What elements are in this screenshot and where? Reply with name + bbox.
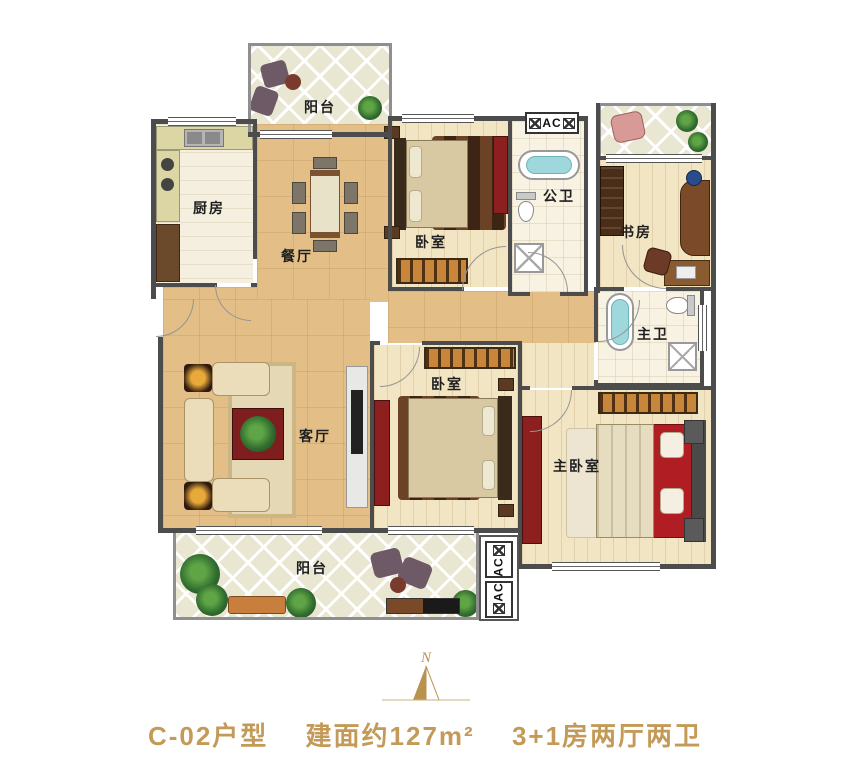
balcony-table (285, 74, 301, 90)
balcony-bench (228, 596, 286, 614)
window (698, 305, 707, 351)
bedroom-mid-wardrobe (424, 347, 516, 369)
caption-unit-name: C-02户型 (148, 721, 268, 751)
kitchen-sink-basin (205, 132, 220, 144)
plant (286, 588, 316, 618)
public-bath-tub-water (526, 156, 572, 174)
dining-table (310, 170, 340, 238)
tv-screen (351, 390, 363, 454)
dining-chair (344, 212, 358, 234)
balcony-table (390, 577, 406, 593)
bedroom-top-wardrobe (396, 258, 468, 284)
nightstand (384, 226, 400, 239)
corridor-floor (388, 291, 596, 343)
wall (422, 341, 522, 345)
wall (151, 119, 156, 299)
window (606, 154, 702, 163)
caption-layout: 3+1房两厅两卫 (512, 721, 702, 751)
study-keyboard (676, 266, 696, 279)
window (388, 526, 474, 535)
ac-unit-right-lower: AC (485, 581, 513, 618)
dining-chair (344, 182, 358, 204)
dining-chair (292, 182, 306, 204)
coffee-table-plant (240, 416, 276, 452)
master-bath-shower (668, 342, 697, 371)
room-label-bedroom-top: 卧室 (415, 232, 447, 252)
room-label-master-bath: 主卫 (637, 324, 669, 344)
ac-hatch-icon (493, 545, 505, 556)
plant (358, 96, 382, 120)
wall (711, 103, 716, 569)
wall (666, 287, 716, 291)
window (196, 526, 322, 535)
ac-label: AC (492, 582, 506, 601)
master-wardrobe (598, 392, 698, 414)
bedroom-top-headboard (394, 138, 406, 230)
wall (248, 43, 392, 46)
compass-north-label: N (420, 650, 432, 666)
plant (196, 584, 228, 616)
wall (572, 386, 714, 390)
wall (596, 103, 600, 293)
wall (151, 283, 217, 287)
room-label-master-bedroom: 主卧室 (553, 456, 601, 476)
nightstand (498, 378, 514, 391)
study-clock (686, 170, 702, 186)
toilet-bowl (666, 297, 688, 314)
plant (676, 110, 698, 132)
corridor-right-floor (522, 343, 594, 388)
ac-hatch-icon (563, 118, 575, 129)
wall (251, 283, 257, 287)
room-label-dining: 餐厅 (281, 246, 313, 266)
window (260, 130, 332, 139)
wall (560, 292, 588, 296)
wall (508, 292, 530, 296)
wall (522, 386, 530, 390)
ac-hatch-icon (493, 603, 505, 614)
wall (508, 116, 512, 296)
wall (584, 116, 588, 296)
window (168, 117, 236, 126)
bedroom-top-cabinet (493, 136, 508, 214)
room-label-bedroom-mid: 卧室 (431, 374, 463, 394)
dining-chair (313, 240, 337, 252)
bedroom-mid-headboard (498, 396, 512, 500)
wall (388, 287, 464, 291)
wall (370, 341, 374, 532)
compass-north-indicator: N (380, 648, 472, 706)
wall (158, 337, 163, 533)
compass-needle-outline (426, 666, 439, 700)
nightstand (498, 504, 514, 517)
kitchen-sink-basin (187, 132, 202, 144)
stove-burner (161, 178, 174, 191)
master-bed-duvet (596, 424, 654, 538)
pillow (482, 406, 495, 436)
room-label-public-bath: 公卫 (543, 186, 575, 206)
sofa-seat (212, 478, 270, 512)
plant (688, 132, 708, 152)
toilet (516, 192, 536, 200)
room-label-kitchen: 厨房 (193, 198, 225, 218)
pillow (482, 460, 495, 490)
wall (389, 43, 392, 123)
room-label-study: 书房 (620, 222, 652, 242)
study-cabinet (680, 180, 710, 256)
dining-chair (313, 157, 337, 169)
floor-lamp (184, 482, 212, 510)
ac-unit-top: AC (525, 112, 579, 134)
wall (388, 121, 392, 291)
room-label-living: 客厅 (299, 426, 331, 446)
toilet (687, 295, 695, 316)
ac-label: AC (492, 557, 506, 576)
dining-chair (292, 212, 306, 234)
compass-needle-filled (413, 666, 426, 700)
nightstand (684, 518, 704, 542)
room-label-balcony-bottom: 阳台 (296, 558, 328, 578)
plan-caption: C-02户型 建面约127m² 3+1房两厅两卫 (0, 716, 850, 753)
bedroom-mid-cabinet (374, 400, 390, 506)
ac-hatch-icon (529, 118, 541, 129)
wall (370, 341, 380, 345)
nightstand (684, 420, 704, 444)
pillow (409, 190, 422, 222)
wall (596, 287, 624, 291)
pillow (409, 146, 422, 178)
sofa-main (184, 398, 214, 482)
wall (175, 617, 478, 620)
fridge (156, 224, 180, 282)
stove-burner (161, 158, 174, 171)
wall (598, 103, 714, 106)
sofa-seat (212, 362, 270, 396)
pillow (660, 432, 684, 458)
balcony-planter (386, 598, 460, 614)
floor-plan-page: AC AC AC 阳台 厨房 餐厅 卧室 公卫 书房 主卫 客厅 卧室 主卧室 … (0, 0, 850, 767)
window (552, 562, 660, 571)
window (402, 114, 474, 123)
floor-lamp (184, 364, 212, 392)
room-label-balcony-top: 阳台 (304, 97, 336, 117)
pillow (660, 488, 684, 514)
wall (173, 533, 176, 620)
caption-area: 建面约127m² (306, 721, 475, 751)
master-cabinet (522, 416, 542, 544)
ac-unit-right-upper: AC (485, 541, 513, 578)
wall (253, 119, 257, 259)
ac-label: AC (542, 116, 561, 130)
